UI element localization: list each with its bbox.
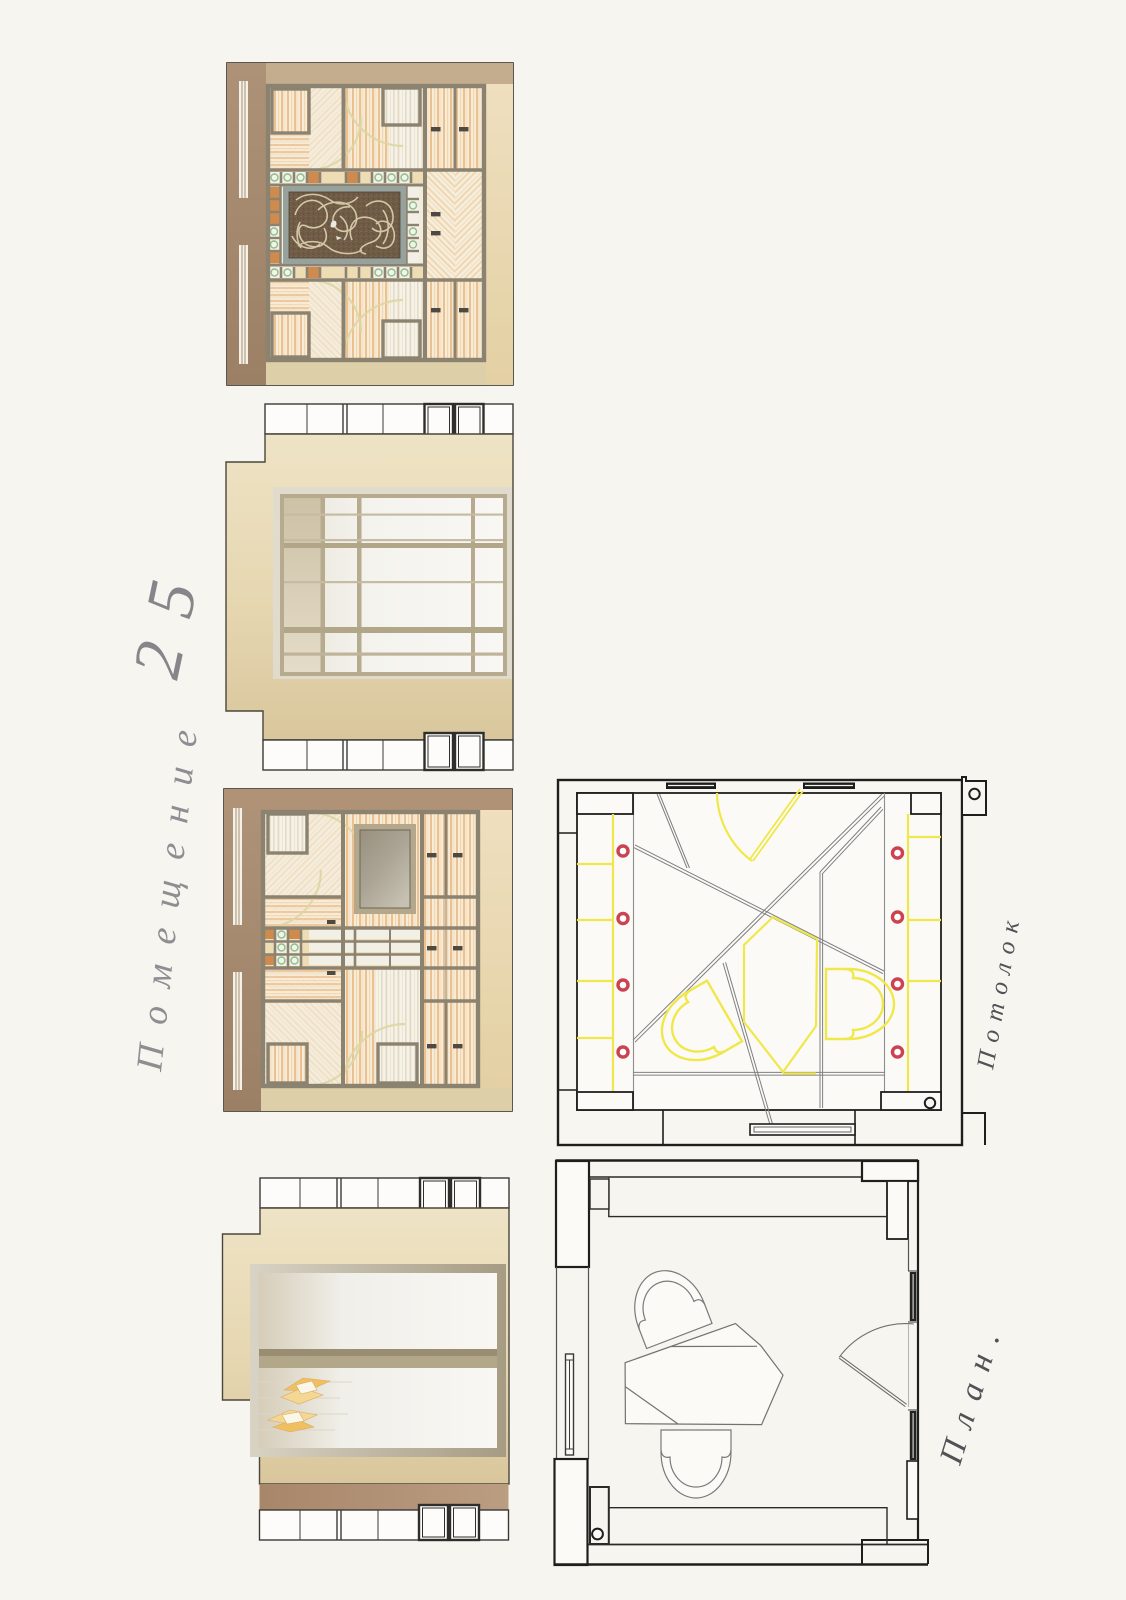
svg-text:25: 25 — [117, 547, 217, 684]
svg-text:План.: План. — [933, 1315, 1012, 1470]
svg-text:Потолок: Потолок — [972, 910, 1026, 1072]
svg-text:Помещение: Помещение — [129, 708, 208, 1074]
